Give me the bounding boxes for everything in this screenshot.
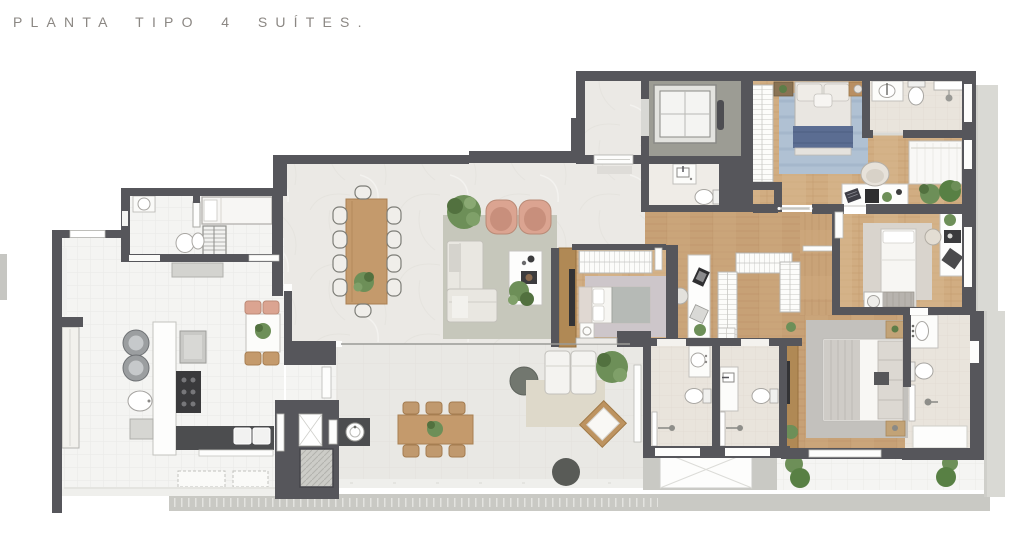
svg-text:PLANTA TIPO 4 SUÍTES.: PLANTA TIPO 4 SUÍTES.	[13, 14, 370, 30]
